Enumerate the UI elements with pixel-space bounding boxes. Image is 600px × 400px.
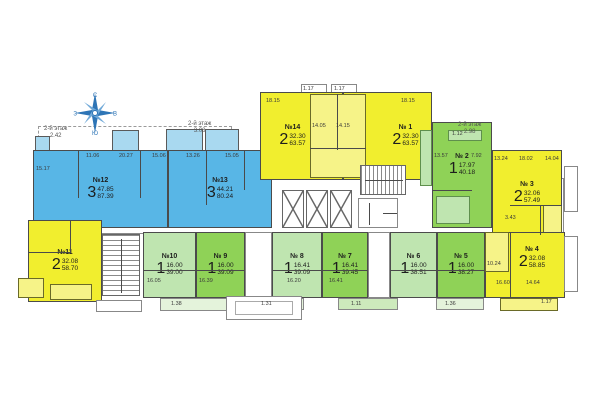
unit-number: №14 bbox=[279, 124, 305, 131]
entrance-hall bbox=[245, 232, 272, 298]
dimension-label: 16.05 bbox=[147, 278, 161, 284]
wall bbox=[322, 270, 368, 271]
green-light-rooms bbox=[436, 196, 470, 224]
dimension-label: 10.24 bbox=[487, 261, 501, 267]
area-total: 58.70 bbox=[62, 265, 78, 272]
wall bbox=[78, 150, 79, 198]
apartment-13[interactable]: №13 3 44.2180.24 bbox=[168, 150, 272, 228]
staircase bbox=[360, 165, 406, 195]
dimension-label: 1.31 bbox=[261, 301, 272, 307]
wall bbox=[70, 220, 71, 252]
unit-number: № 3 bbox=[514, 181, 540, 188]
dimension-label: 16.20 bbox=[287, 278, 301, 284]
unit-number: № 9 bbox=[207, 253, 233, 260]
yellow-light-rooms bbox=[543, 205, 562, 235]
elevator-x-icon bbox=[331, 191, 351, 227]
dimension-label: 1.11 bbox=[351, 301, 361, 307]
room-count: 1 bbox=[156, 261, 165, 277]
floor-note-value: 3.08 bbox=[188, 128, 211, 135]
apartment-9-label: № 9 1 16.0039.09 bbox=[207, 253, 233, 277]
wall bbox=[143, 270, 196, 271]
room-count: 1 bbox=[449, 161, 458, 177]
dimension-label: 14.64 bbox=[526, 280, 540, 286]
room-count: 2 bbox=[392, 132, 401, 148]
area-total: 87.39 bbox=[97, 193, 113, 200]
area-living: 16.00 bbox=[166, 262, 182, 269]
unit-number: №13 bbox=[207, 177, 233, 184]
dimension-label: 14.15 bbox=[336, 123, 350, 129]
dimension-label: 18.15 bbox=[266, 98, 280, 104]
compass-west-letter: З bbox=[73, 112, 77, 118]
dimension-label: 20.27 bbox=[119, 153, 133, 159]
unit-number: № 8 bbox=[284, 253, 310, 260]
room-count: 1 bbox=[207, 261, 216, 277]
dimension-label: 13.26 bbox=[186, 153, 200, 159]
dimension-label: 11.06 bbox=[86, 153, 99, 159]
balcony-bay bbox=[18, 278, 44, 298]
wall bbox=[196, 270, 245, 271]
unit-number: № 7 bbox=[332, 253, 358, 260]
wall bbox=[369, 203, 370, 225]
elevator-shaft bbox=[330, 190, 352, 228]
unit-number: № 1 bbox=[392, 124, 418, 131]
room-count: 1 bbox=[284, 261, 293, 277]
apartment-12-label: №12 3 47.8587.39 bbox=[87, 177, 113, 201]
compass-rose: С В Ю З bbox=[73, 91, 117, 135]
apartment-3-label: № 3 2 32.0657.49 bbox=[514, 181, 540, 205]
balcony-bay bbox=[420, 130, 432, 186]
entrance-porch bbox=[96, 300, 142, 312]
apartment-10[interactable]: №10 1 16.0039.00 bbox=[143, 232, 196, 298]
area-living: 32.08 bbox=[62, 258, 78, 265]
floor-note: 2-й этаж 2.42 bbox=[44, 126, 67, 139]
unit-number: № 5 bbox=[448, 253, 474, 260]
elevator-x-icon bbox=[307, 191, 327, 227]
dimension-label: 1.36 bbox=[445, 301, 456, 307]
apartment-4-label: № 4 2 32.0858.85 bbox=[519, 246, 545, 270]
dimension-label: 16.39 bbox=[199, 278, 213, 284]
stair-divider bbox=[365, 180, 403, 181]
yellow-light-rooms bbox=[310, 94, 366, 178]
dimension-label: 1.38 bbox=[171, 301, 182, 307]
wall bbox=[510, 205, 562, 206]
apartment-7[interactable]: № 7 1 16.4139.45 bbox=[322, 232, 368, 298]
floor-note: 2-й этаж 3.08 bbox=[188, 121, 211, 134]
apartment-6[interactable]: № 6 1 16.0038.51 bbox=[390, 232, 437, 298]
dimension-label: 7.92 bbox=[471, 153, 482, 159]
wall bbox=[310, 148, 366, 149]
floor-note-label: 2-й этаж bbox=[458, 122, 481, 129]
unit-number: № 6 bbox=[400, 253, 426, 260]
wall bbox=[206, 150, 207, 205]
area-total: 63.57 bbox=[289, 140, 305, 147]
apartment-14-label: №14 2 32.3063.57 bbox=[279, 124, 305, 148]
dimension-label: 14.04 bbox=[545, 156, 559, 162]
area-living: 17.97 bbox=[459, 162, 475, 169]
room-count: 1 bbox=[448, 261, 457, 277]
area-living: 47.85 bbox=[97, 186, 113, 193]
room-count: 1 bbox=[332, 261, 341, 277]
apartment-6-label: № 6 1 16.0038.51 bbox=[400, 253, 426, 277]
wall bbox=[510, 232, 511, 298]
dimension-label: 18.02 bbox=[519, 156, 533, 162]
area-living: 16.00 bbox=[410, 262, 426, 269]
balcony-bay bbox=[50, 284, 92, 300]
dimension-label: 16.60 bbox=[496, 280, 510, 286]
area-total: 57.49 bbox=[524, 197, 540, 204]
unit-number: №10 bbox=[156, 253, 182, 260]
room-count: 3 bbox=[207, 185, 216, 201]
area-living: 16.00 bbox=[217, 262, 233, 269]
apartment-5-label: № 5 1 16.0038.27 bbox=[448, 253, 474, 277]
room-count: 2 bbox=[519, 254, 528, 270]
area-living: 32.30 bbox=[289, 133, 305, 140]
wall bbox=[28, 252, 71, 253]
area-total: 58.85 bbox=[529, 262, 545, 269]
dimension-label: 1.17 bbox=[303, 86, 314, 92]
apartment-1-label: № 1 2 32.3063.57 bbox=[392, 124, 418, 148]
room-count: 2 bbox=[514, 189, 523, 205]
elevator-lobby bbox=[358, 198, 398, 228]
dimension-label: 15.17 bbox=[36, 166, 50, 172]
area-living: 32.08 bbox=[529, 255, 545, 262]
compass-east-letter: В bbox=[113, 112, 117, 118]
unit-number: №12 bbox=[87, 177, 113, 184]
floor-note-value: 2.42 bbox=[44, 133, 67, 140]
wall bbox=[140, 150, 141, 198]
apartment-7-label: № 7 1 16.4139.45 bbox=[332, 253, 358, 277]
dimension-label: 1.12 bbox=[452, 131, 463, 137]
dimension-label: 1.17 bbox=[541, 299, 552, 305]
balcony-bay bbox=[338, 298, 398, 310]
room-count: 1 bbox=[400, 261, 409, 277]
area-living: 16.00 bbox=[458, 262, 474, 269]
area-living: 16.41 bbox=[294, 262, 310, 269]
dimension-label: 16.41 bbox=[329, 278, 343, 284]
wall bbox=[437, 270, 485, 271]
room-count: 2 bbox=[52, 257, 61, 273]
apartment-12[interactable]: №12 3 47.8587.39 bbox=[33, 150, 168, 228]
wall bbox=[383, 213, 397, 214]
dimension-label: 13.57 bbox=[434, 153, 448, 159]
compass-star-icon: С В Ю З bbox=[73, 91, 117, 135]
area-total: 63.57 bbox=[402, 140, 418, 147]
balcony-bay bbox=[436, 298, 484, 310]
compass-north-letter: С bbox=[93, 93, 98, 99]
elevator-shaft bbox=[282, 190, 304, 228]
compass-south-letter: Ю bbox=[92, 131, 98, 135]
staircase bbox=[102, 234, 140, 296]
room-count: 3 bbox=[87, 185, 96, 201]
elevator-shaft bbox=[306, 190, 328, 228]
area-living: 32.30 bbox=[402, 133, 418, 140]
unit-number: № 4 bbox=[519, 246, 545, 253]
apartment-5[interactable]: № 5 1 16.0038.27 bbox=[437, 232, 485, 298]
wall bbox=[337, 94, 338, 150]
area-living: 16.41 bbox=[342, 262, 358, 269]
dimension-label: 1.17 bbox=[334, 86, 345, 92]
room-count: 2 bbox=[279, 132, 288, 148]
area-total: 40.18 bbox=[459, 169, 475, 176]
dimension-label: 13.24 bbox=[494, 156, 508, 162]
dimension-label: 15.06 bbox=[152, 153, 166, 159]
area-living: 32.06 bbox=[524, 190, 540, 197]
wall bbox=[540, 205, 541, 235]
entrance-hall bbox=[368, 232, 390, 298]
floor-note-label: 2-й этаж bbox=[44, 126, 67, 133]
dimension-label: 18.15 bbox=[401, 98, 415, 104]
elevator-x-icon bbox=[283, 191, 303, 227]
entrance-porch bbox=[226, 296, 302, 320]
wall bbox=[244, 150, 245, 190]
area-living: 44.21 bbox=[217, 186, 233, 193]
dimension-label: 14.05 bbox=[312, 123, 326, 129]
apartment-8[interactable]: № 8 1 16.4139.09 bbox=[272, 232, 322, 298]
dimension-label: 15.05 bbox=[225, 153, 239, 159]
balcony-bay bbox=[564, 166, 578, 212]
wall bbox=[432, 190, 472, 191]
area-total: 80.24 bbox=[217, 193, 233, 200]
wall bbox=[272, 270, 322, 271]
apartment-10-label: №10 1 16.0039.00 bbox=[156, 253, 182, 277]
apartment-13-label: №13 3 44.2180.24 bbox=[207, 177, 233, 201]
dimension-label: 3.43 bbox=[505, 215, 516, 221]
stair-divider bbox=[121, 239, 122, 293]
floor-note-label: 2-й этаж bbox=[188, 121, 211, 128]
apartment-9[interactable]: № 9 1 16.0039.09 bbox=[196, 232, 245, 298]
apartment-8-label: № 8 1 16.4139.09 bbox=[284, 253, 310, 277]
wall bbox=[390, 270, 437, 271]
balcony-bay bbox=[564, 236, 578, 292]
